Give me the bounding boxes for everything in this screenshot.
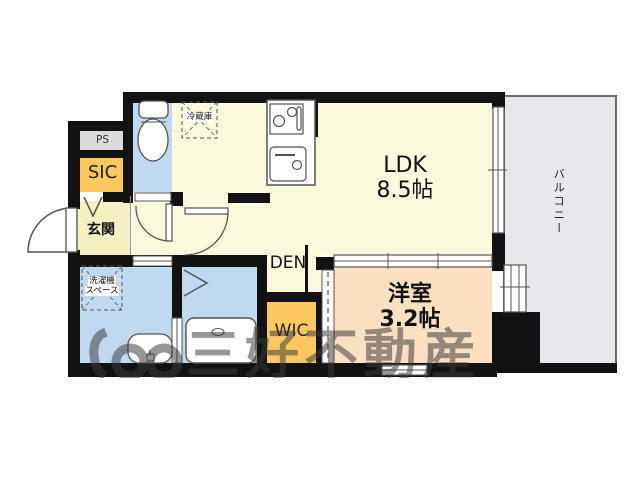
western-door-icon: [322, 270, 334, 363]
bath-folding-door-icon: [184, 270, 207, 296]
bottom-window-icon: [382, 365, 427, 375]
fixtures-layer: [0, 0, 640, 480]
floor-plan: LDK 8.5帖 洋室 3.2帖 バルコニー 玄関 SIC PS WIC DEN…: [0, 0, 640, 480]
label-sic: SIC: [80, 163, 125, 184]
label-den: DEN: [262, 254, 314, 274]
kitchen-counter-icon: [267, 100, 315, 185]
bathtub-icon: [186, 318, 256, 363]
western-name: 洋室: [345, 282, 475, 307]
toilet-door-arc-icon: [135, 193, 172, 241]
western-balcony-window-icon: [500, 265, 530, 312]
label-western-room: 洋室 3.2帖: [345, 282, 475, 333]
washing-machine-text-1: 洗濯機: [88, 276, 116, 286]
label-entrance: 玄関: [72, 222, 130, 238]
bath-door-icon: [172, 318, 182, 363]
label-washing-machine: 洗濯機 スペース: [79, 277, 125, 297]
toilet-icon: [138, 101, 168, 161]
western-size: 3.2帖: [345, 307, 475, 332]
ldk-western-sliding-door-icon: [334, 253, 492, 269]
ldk-balcony-window-icon: [488, 107, 507, 233]
ldk-size: 8.5帖: [340, 178, 470, 203]
label-refrigerator: 冷蔵庫: [181, 113, 218, 123]
washbasin-icon: [128, 334, 172, 363]
refrigerator-text: 冷蔵庫: [186, 112, 214, 122]
ldk-door-arc-icon: [185, 208, 228, 255]
label-wic: WIC: [267, 322, 316, 342]
entrance-door-arc-icon: [28, 208, 77, 252]
label-balcony: バルコニー: [552, 168, 565, 236]
label-ldk: LDK 8.5帖: [340, 153, 470, 204]
washing-machine-text-2: スペース: [85, 286, 120, 296]
washroom-door-icon: [133, 256, 172, 266]
ldk-name: LDK: [340, 153, 470, 178]
label-ps: PS: [80, 134, 125, 146]
sic-door-icon: [80, 192, 103, 216]
